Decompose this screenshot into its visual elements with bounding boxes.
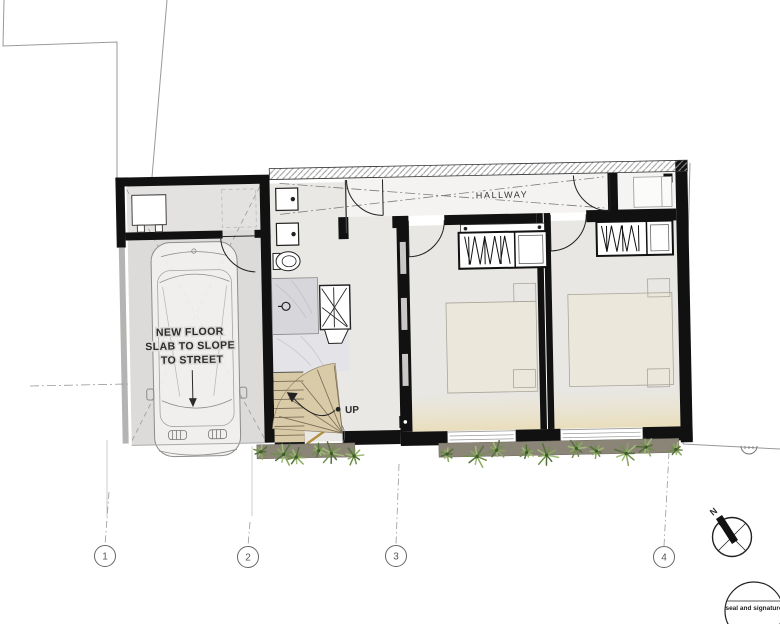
grid-bubbles: 1 2 3 4 bbox=[95, 546, 675, 568]
setback-dashdot bbox=[30, 384, 128, 386]
seal-label: seal and signature bbox=[725, 605, 780, 612]
up-label: UP bbox=[345, 405, 359, 416]
grid-bubble-4: 4 bbox=[661, 553, 667, 564]
stairs bbox=[271, 363, 343, 442]
grid-bubble-3: 3 bbox=[393, 552, 399, 563]
north-label: N bbox=[708, 506, 719, 518]
building: NEW FLOOR SLAB TO SLOPE TO STREET bbox=[115, 160, 693, 475]
wardrobe-bedroom2 bbox=[596, 221, 673, 257]
bedroom2-light bbox=[554, 386, 681, 429]
grid-bubble-1: 1 bbox=[102, 552, 108, 563]
grid-lines bbox=[105, 452, 669, 546]
garage-left-lower-wall bbox=[119, 248, 129, 444]
floor-plan-drawing: NEW FLOOR SLAB TO SLOPE TO STREET bbox=[0, 0, 780, 624]
north-arrow: N bbox=[708, 506, 752, 557]
store-counter bbox=[633, 177, 672, 208]
hallway-label: HALLWAY bbox=[476, 189, 529, 200]
floor-plan-sheet: NEW FLOOR SLAB TO SLOPE TO STREET bbox=[0, 0, 780, 624]
wardrobe-bedroom1 bbox=[458, 223, 547, 269]
shower bbox=[271, 278, 318, 335]
grid-bubble-2: 2 bbox=[245, 553, 251, 564]
bedroom1-light bbox=[412, 389, 541, 432]
planter-soil-left bbox=[257, 443, 355, 459]
toilet bbox=[273, 251, 300, 271]
seal-and-signature: seal and signature bbox=[725, 582, 780, 624]
